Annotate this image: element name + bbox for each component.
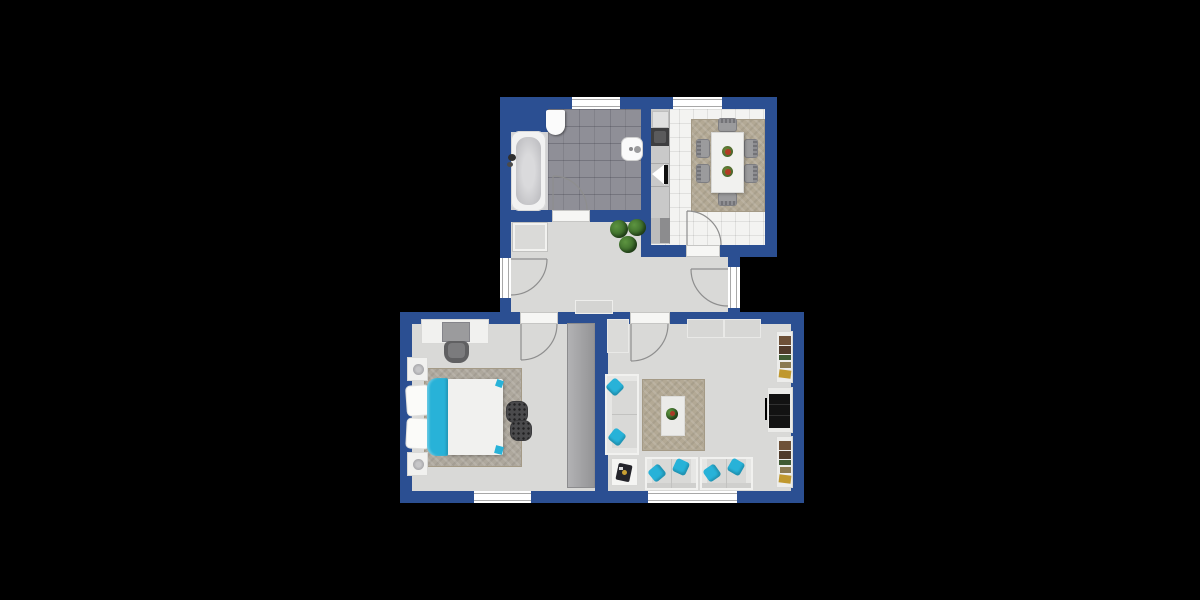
- entry-left-door-arc: [511, 259, 547, 295]
- door-swing-arcs: [0, 0, 1200, 600]
- entry-right-door-arc: [691, 269, 728, 306]
- floor-plan-canvas: [0, 0, 1200, 600]
- bathroom-door-arc: [553, 176, 587, 210]
- bedroom-door-arc: [521, 324, 557, 360]
- kitchen-door-arc: [687, 211, 721, 245]
- living-room-door-arc: [631, 324, 668, 361]
